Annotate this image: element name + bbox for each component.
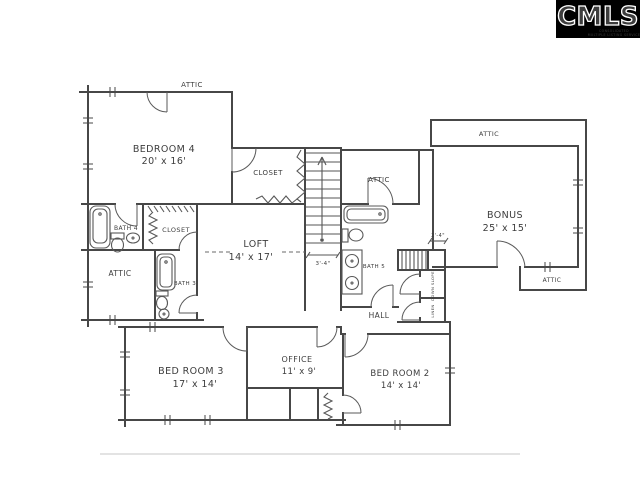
main-staircase [306,153,340,258]
cmls-logo-graphic: CMLS CONSOLIDATED MULTIPLE LISTING SERVI… [556,0,640,38]
closet-lower-label: LINEN [430,304,435,317]
floor-plan-page: ATTIC BEDROOM 4 20' x 16' CLOSET ATTIC A… [0,0,640,480]
bonus-attic-bottom-label: ATTIC [543,277,562,284]
labels-group: ATTIC BEDROOM 4 20' x 16' CLOSET ATTIC A… [108,81,561,391]
sink-icon [127,233,140,243]
closet-rod-icon [149,212,157,244]
closet-upper-label: DOWN SLOPE [430,271,435,301]
floor-plan-drawing: ATTIC BEDROOM 4 20' x 16' CLOSET ATTIC A… [0,0,640,480]
office-label: OFFICE [282,355,313,364]
attic-mid-label: ATTIC [368,176,390,184]
bath4-label: BATH 4 [114,225,138,232]
bath5-fixtures [342,206,388,294]
closet-top-label: CLOSET [253,169,283,177]
closet-left-label: CLOSET [162,226,190,234]
bonus-attic-label: ATTIC [479,130,499,138]
bath3-fixtures [156,254,175,319]
cmls-brand-text: CMLS [557,2,639,32]
sink-icon [159,309,169,319]
toilet-icon [342,229,363,242]
office-dims: 11' x 9' [282,367,317,377]
back-stairs-dimension: 2'-4" [431,233,445,239]
bedroom2-label: BED ROOM 2 [370,369,429,379]
closet-rod-icon [256,196,297,203]
bonus-label: BONUS [487,210,523,221]
door-arcs-group [115,92,525,413]
bedroom4-dims: 20' x 16' [142,156,187,167]
attic-top-label: ATTIC [181,81,203,89]
closet-rod-icon [297,150,305,202]
window-ticks-group [83,87,583,430]
closet-shelf-hashes [148,206,194,212]
bathtub-icon [157,254,175,290]
double-sink-vanity-icon [342,250,362,294]
stairs-dimension: 3'-4" [315,261,330,267]
toilet-icon [156,291,168,310]
bedroom3-label: BED ROOM 3 [158,366,224,377]
cmls-tagline-line2: MULTIPLE LISTING SERVICE [588,33,640,37]
bath5-label: BATH 5 [363,264,385,270]
walls-group [80,86,586,426]
bonus-dims: 25' x 15' [483,223,528,234]
bedroom4-label: BEDROOM 4 [133,144,195,155]
bedroom2-dims: 14' x 14' [381,381,421,391]
back-staircase [402,238,448,269]
hall-label: HALL [369,311,390,320]
cmls-logo: CMLS CONSOLIDATED MULTIPLE LISTING SERVI… [556,0,640,38]
bathtub-icon [344,206,388,223]
bath3-label: BATH 3 [174,281,196,287]
bathtub-icon [90,206,110,248]
closet-rod-icon [324,393,332,419]
loft-dims: 14' x 17' [229,252,274,263]
stair-direction-arrow [318,157,326,242]
attic-left-label: ATTIC [108,269,131,278]
bedroom3-dims: 17' x 14' [173,379,218,390]
loft-label: LOFT [243,239,268,250]
